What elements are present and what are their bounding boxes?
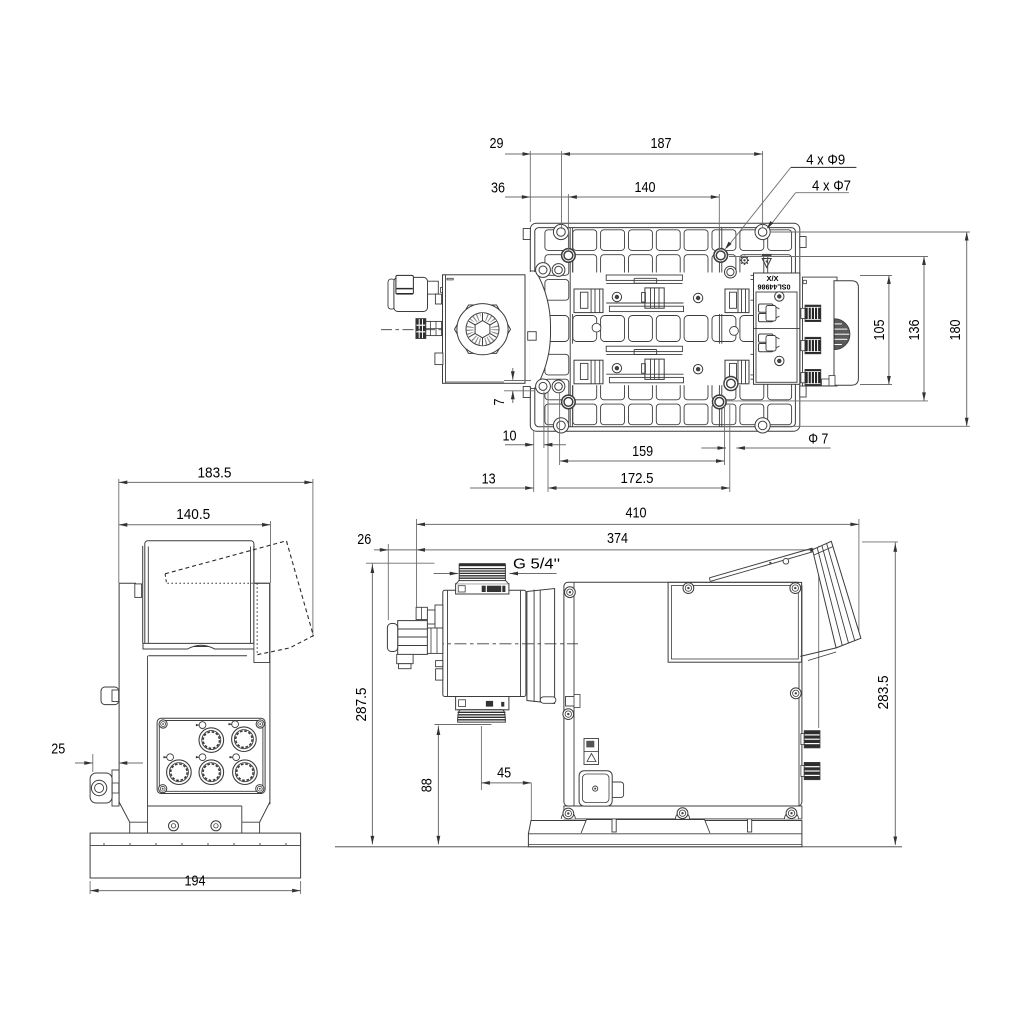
- svg-text:194: 194: [185, 872, 206, 889]
- svg-text:88: 88: [419, 778, 436, 792]
- svg-text:283.5: 283.5: [875, 675, 892, 709]
- svg-text:X/X: X/X: [766, 274, 778, 283]
- svg-text:10: 10: [503, 427, 517, 444]
- svg-text:180: 180: [947, 320, 964, 341]
- svg-text:159: 159: [632, 443, 653, 460]
- svg-text:105: 105: [871, 320, 888, 341]
- svg-text:4 x Φ9: 4 x Φ9: [806, 151, 845, 168]
- svg-text:374: 374: [607, 530, 628, 547]
- svg-text:183.5: 183.5: [198, 465, 232, 482]
- svg-text:0SL44986: 0SL44986: [758, 282, 791, 291]
- svg-text:140: 140: [635, 179, 656, 196]
- svg-text:G 5/4'': G 5/4'': [513, 555, 560, 572]
- svg-text:36: 36: [491, 179, 505, 196]
- svg-text:45: 45: [497, 765, 511, 782]
- svg-text:29: 29: [490, 135, 504, 152]
- svg-text:25: 25: [51, 740, 65, 757]
- svg-text:Φ 7: Φ 7: [808, 432, 828, 448]
- svg-text:140.5: 140.5: [176, 506, 210, 523]
- svg-text:172.5: 172.5: [621, 470, 654, 487]
- svg-text:410: 410: [626, 504, 647, 521]
- svg-text:13: 13: [482, 470, 496, 487]
- svg-text:287.5: 287.5: [353, 688, 370, 722]
- svg-text:187: 187: [651, 135, 672, 152]
- svg-text:7: 7: [491, 399, 508, 406]
- svg-text:26: 26: [357, 531, 371, 548]
- svg-text:4 x Φ7: 4 x Φ7: [812, 177, 851, 194]
- svg-text:136: 136: [906, 320, 923, 341]
